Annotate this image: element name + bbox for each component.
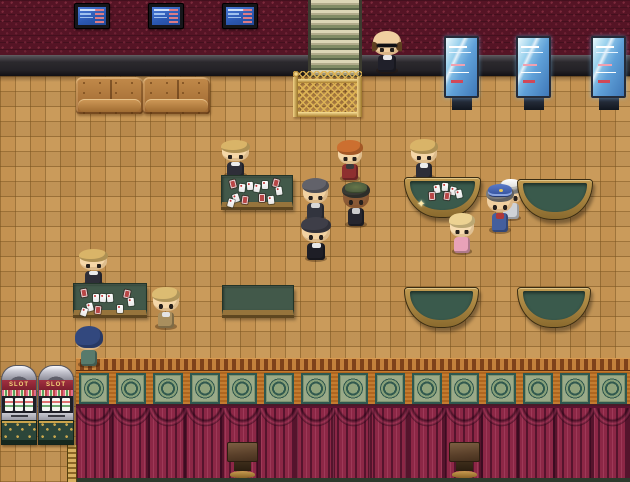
slot-machine-base [1,420,37,445]
slot-machine-top [1,365,37,380]
slot-machine-banner: SLOT [38,380,74,390]
table-felt [523,183,587,212]
monitor-screen [226,7,254,25]
sprite-body [81,350,98,366]
podium-pedestal [234,462,251,471]
slot-reel [15,398,23,411]
info-display-screen [591,36,626,98]
medallion-panel [560,373,590,404]
cap-blue-accessory [488,184,512,196]
monitor-screen [78,7,106,25]
medallion-panel [486,373,516,404]
sprite-collar [312,243,321,248]
curtain-valance [76,406,630,440]
table-felt [410,291,473,320]
playing-card [268,196,275,205]
sprite-collar [420,163,428,168]
slot-machine-panel [1,413,37,420]
slot-reel [42,398,50,411]
character-guest-blue-cap[interactable] [486,186,514,234]
medallion-panel [116,373,146,404]
slot-reel [5,398,13,411]
sprite-eyes [308,196,323,201]
slot-machine-label: SLOT [46,382,66,388]
medallion-panel [264,373,294,404]
entrance-stairs[interactable] [308,0,362,77]
sprite-body [492,213,509,232]
medallion-panel [523,373,553,404]
sprite-head [222,141,249,161]
sprite-collar [496,213,504,219]
slot-machine-reels [38,396,74,413]
medallion-panel [79,373,109,404]
monitor-screen [152,7,180,25]
character-guest-red-jacket[interactable] [337,141,363,182]
playing-card [429,192,436,200]
table-felt [523,291,585,320]
playing-card [253,184,260,193]
playing-card [442,183,449,191]
slot-machine-panel [38,413,74,420]
sprite-hair [152,287,180,302]
stage-podium [449,442,480,478]
medallion-panel [190,373,220,404]
stage-wall [76,358,630,482]
character-dealer-north[interactable] [221,141,250,178]
leather-couch [143,77,210,114]
playing-card [128,298,135,307]
slot-machine-banner: SLOT [1,380,37,390]
sprite-head [302,218,330,242]
info-display[interactable] [516,36,551,112]
playing-card [229,179,237,188]
character-doorman[interactable] [372,31,402,74]
playing-card [239,184,246,193]
sprite-hair [337,140,363,154]
card-table-north[interactable] [221,175,293,207]
sprite-collar [311,203,319,208]
info-display-base [452,98,472,110]
sprite-collar [231,162,240,166]
sprite-hair [221,140,250,153]
character-player[interactable] [75,327,103,368]
character-dealer-south[interactable] [79,250,108,287]
character-guest-grey-hair[interactable] [302,179,329,222]
medallion-panel [338,373,368,404]
slot-machine-base [38,420,74,445]
playing-card [100,294,107,302]
leather-couch [76,77,143,114]
casino-room: SLOTSLOT✦ [0,0,630,482]
playing-card [93,294,99,302]
info-display-screen [516,36,551,98]
slot-reel [62,398,70,411]
slot-machine-label: SLOT [9,382,29,388]
sprite-body [378,55,396,72]
sprite-body [307,243,325,261]
sprite-eyes [85,264,101,268]
sprite-head [80,250,107,270]
medallion-panel [227,373,257,404]
playing-card [227,198,235,207]
character-dealer-blackjack[interactable] [410,140,438,181]
sprite-head [450,214,474,237]
slot-machine[interactable]: SLOT [38,365,74,445]
medallion-panel [375,373,405,404]
sprite-head [153,288,179,311]
sprite-hair [302,178,329,193]
podium-base [452,471,477,478]
slot-machine[interactable]: SLOT [1,365,37,445]
character-guest-blonde[interactable] [152,288,180,330]
sprite-eyes [158,304,174,309]
info-display[interactable] [591,36,626,112]
gold-railing [293,71,362,117]
wall-monitor [222,3,258,29]
playing-card [275,187,282,196]
wall-monitor [148,3,184,29]
sunglasses-accessory [377,44,396,47]
podium-top [227,442,258,462]
sprite-eyes [416,156,432,161]
sprite-hair [75,326,103,348]
playing-card [107,294,114,302]
sprite-collar [352,208,360,213]
podium-top [449,442,480,462]
sprite-head [76,327,102,350]
sprite-collar [346,164,354,169]
sprite-hair [410,139,438,153]
empty-table-center[interactable] [222,285,294,315]
info-display[interactable] [444,36,479,112]
podium-base [230,471,255,478]
sprite-collar [383,55,392,60]
stage-frieze [76,371,630,406]
medallion-panel [153,373,183,404]
slot-reel [52,398,60,411]
sprite-eyes [455,230,470,235]
sprite-eyes [348,200,364,205]
sprite-body [342,164,358,180]
character-guest-green-cap[interactable] [342,183,370,228]
cap-green-accessory [345,182,367,192]
podium-pedestal [456,462,473,471]
sprite-body [348,208,365,226]
medallion-panel [449,373,479,404]
slot-reel [25,398,33,411]
sprite-eyes [343,157,358,162]
playing-card [262,181,268,189]
medallion-panel [597,373,627,404]
card-table-south[interactable] [73,283,147,315]
info-display-base [599,98,619,110]
character-child-pink[interactable] [449,214,475,255]
sprite-collar [162,312,170,317]
info-display-base [524,98,544,110]
character-guest-black-suit[interactable] [301,218,331,262]
playing-card [443,192,450,201]
sprite-hair [79,249,108,262]
sprite-hair [449,213,475,227]
stage-corner-trim [67,445,77,482]
slot-machine-top [38,365,74,380]
stage-curtain [76,406,630,478]
playing-card [95,306,102,315]
sprite-eyes [227,155,243,159]
sprite-head [411,140,437,163]
playing-card [247,182,254,190]
playing-card [117,305,123,313]
sprite-collar [89,271,98,275]
sprite-body [158,312,175,329]
stage-floor-strip [76,478,630,482]
sprite-hair [301,217,331,232]
medallion-panel [301,373,331,404]
wall-monitor [74,3,110,29]
sprite-eyes [308,235,325,240]
sprite-eyes [492,205,508,210]
sprite-head [338,141,362,164]
sprite-body [454,237,470,253]
playing-card [241,196,248,205]
medallion-panel [412,373,442,404]
stage-podium [227,442,258,478]
frieze-trim [76,358,630,371]
info-display-screen [444,36,479,98]
playing-card [259,194,265,202]
playing-card [80,289,87,298]
sprite-head [303,179,328,203]
sparkle-icon: ✦ [417,200,425,210]
slot-machine-reels [1,396,37,413]
